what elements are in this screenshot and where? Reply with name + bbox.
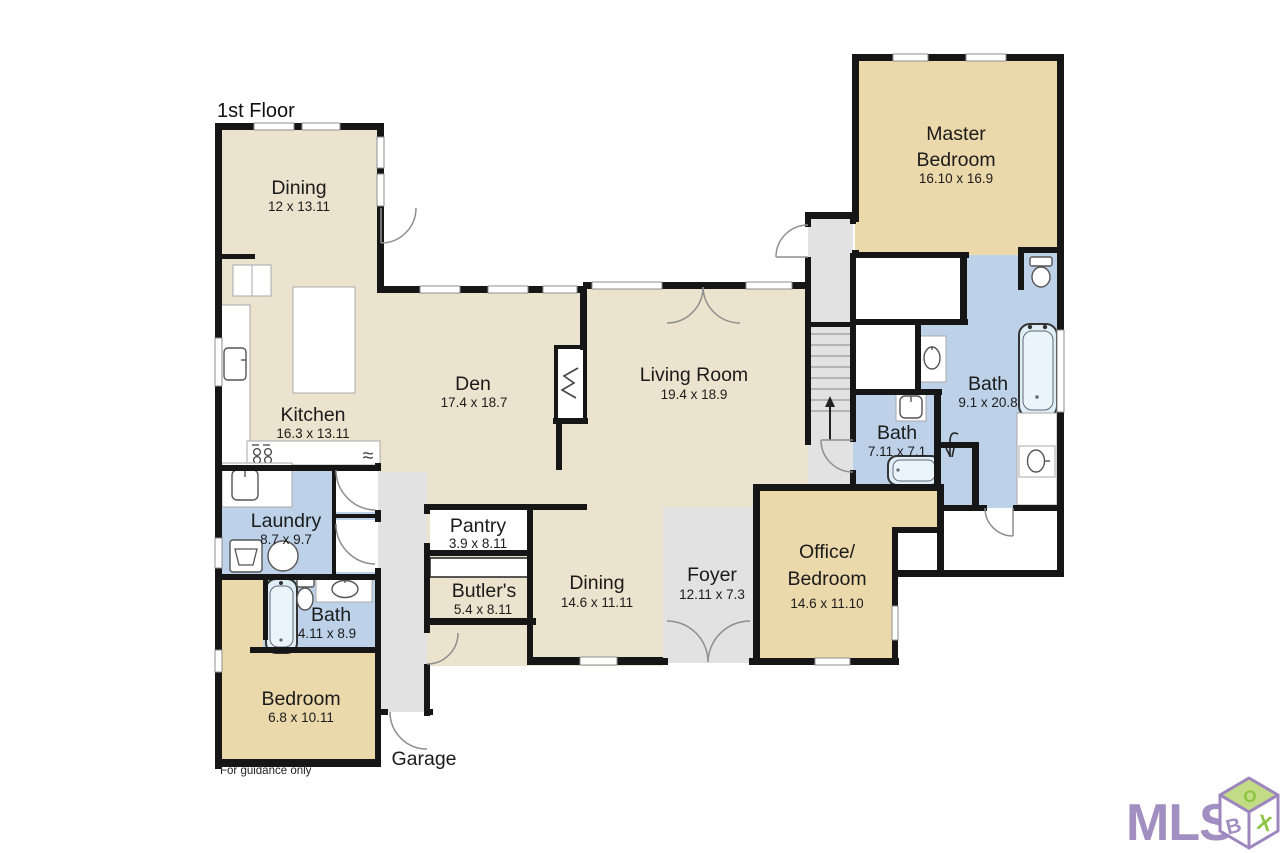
laundry-sink-icon bbox=[232, 470, 258, 500]
fridge-icon bbox=[233, 265, 271, 296]
label-office-2: Bedroom bbox=[787, 568, 866, 590]
label-kitchen: Kitchen bbox=[280, 404, 345, 426]
hall-bath-sink-icon bbox=[896, 393, 926, 421]
label-master-bath: Bath bbox=[968, 373, 1008, 395]
hallway-stairs-floor bbox=[808, 218, 853, 488]
room-bedroom-strip-floor bbox=[222, 575, 265, 655]
closet-rear bbox=[941, 510, 1057, 570]
dims-den: 17.4 x 18.7 bbox=[441, 395, 508, 410]
master-vanity-sink-icon bbox=[1017, 413, 1057, 505]
closet-office bbox=[897, 532, 938, 570]
fireplace-icon bbox=[556, 347, 585, 421]
label-dining-top: Dining bbox=[271, 177, 326, 199]
door-hall-exterior bbox=[776, 225, 808, 257]
dims-office: 14.6 x 11.10 bbox=[790, 596, 863, 611]
guest-vanity-sink-icon bbox=[316, 577, 372, 602]
label-master-1: Master bbox=[926, 123, 986, 145]
label-butlers: Butler's bbox=[452, 580, 517, 602]
dims-master: 16.10 x 16.9 bbox=[919, 171, 993, 186]
dims-living-room: 19.4 x 18.9 bbox=[661, 387, 728, 402]
label-laundry: Laundry bbox=[251, 510, 322, 532]
dims-butlers: 5.4 x 8.11 bbox=[454, 602, 512, 617]
footnote: For guidance only bbox=[220, 765, 312, 777]
mls-logo: MLS O B X bbox=[1126, 778, 1278, 852]
mls-logo-cube-icon: O B X bbox=[1220, 778, 1278, 848]
dishwasher-wave-icon: ≈ bbox=[363, 445, 374, 467]
label-guest-bath: Bath bbox=[311, 604, 351, 626]
master-toilet-icon bbox=[1030, 257, 1052, 287]
door-dining bbox=[381, 208, 416, 243]
page-title: 1st Floor bbox=[217, 100, 295, 122]
dims-guest-bath: 4.11 x 8.9 bbox=[298, 626, 356, 641]
label-den: Den bbox=[455, 373, 491, 395]
dims-master-bath: 9.1 x 20.8 bbox=[958, 395, 1017, 410]
dims-dining-top: 12 x 13.11 bbox=[268, 199, 330, 214]
kitchen-counter-left bbox=[218, 305, 250, 463]
kitchen-island bbox=[293, 287, 355, 393]
dims-laundry: 8.7 x 9.7 bbox=[260, 532, 312, 547]
dims-pantry: 3.9 x 8.11 bbox=[449, 536, 507, 551]
floor-plan: ≈ bbox=[0, 0, 1280, 853]
label-pantry: Pantry bbox=[450, 515, 507, 537]
closet-master-b bbox=[855, 325, 918, 392]
master-bathtub-icon bbox=[1019, 324, 1057, 417]
butlers-counter bbox=[430, 558, 530, 577]
hall-bathtub-icon bbox=[888, 456, 940, 485]
label-garage: Garage bbox=[391, 748, 456, 770]
label-bedroom: Bedroom bbox=[261, 688, 340, 710]
closet-master-a bbox=[855, 258, 963, 322]
label-foyer: Foyer bbox=[687, 564, 737, 586]
door-garage bbox=[390, 712, 427, 749]
guest-bathtub-icon bbox=[266, 579, 297, 653]
dims-foyer: 12.11 x 7.3 bbox=[679, 587, 745, 602]
label-hall-bath: Bath bbox=[877, 422, 917, 444]
room-office-notch-floor bbox=[895, 490, 940, 528]
label-office-1: Office/ bbox=[799, 541, 856, 563]
label-master-2: Bedroom bbox=[916, 149, 995, 171]
mud-hallway-floor bbox=[378, 472, 427, 712]
label-dining-bottom: Dining bbox=[569, 572, 624, 594]
dims-kitchen: 16.3 x 13.11 bbox=[276, 426, 349, 441]
mls-cube-letter-o: O bbox=[1243, 787, 1256, 806]
kitchen-sink-icon bbox=[224, 348, 246, 380]
dims-dining-bottom: 14.6 x 11.11 bbox=[561, 595, 633, 610]
master-vanity2-sink-icon bbox=[920, 336, 946, 382]
dims-hall-bath: 7.11 x 7.1 bbox=[868, 444, 926, 459]
washer-icon bbox=[230, 540, 262, 572]
floorplan-page: ≈ bbox=[0, 0, 1280, 853]
mls-logo-text: MLS bbox=[1126, 794, 1233, 852]
dims-bedroom: 6.8 x 10.11 bbox=[268, 710, 334, 725]
label-living-room: Living Room bbox=[640, 364, 748, 386]
